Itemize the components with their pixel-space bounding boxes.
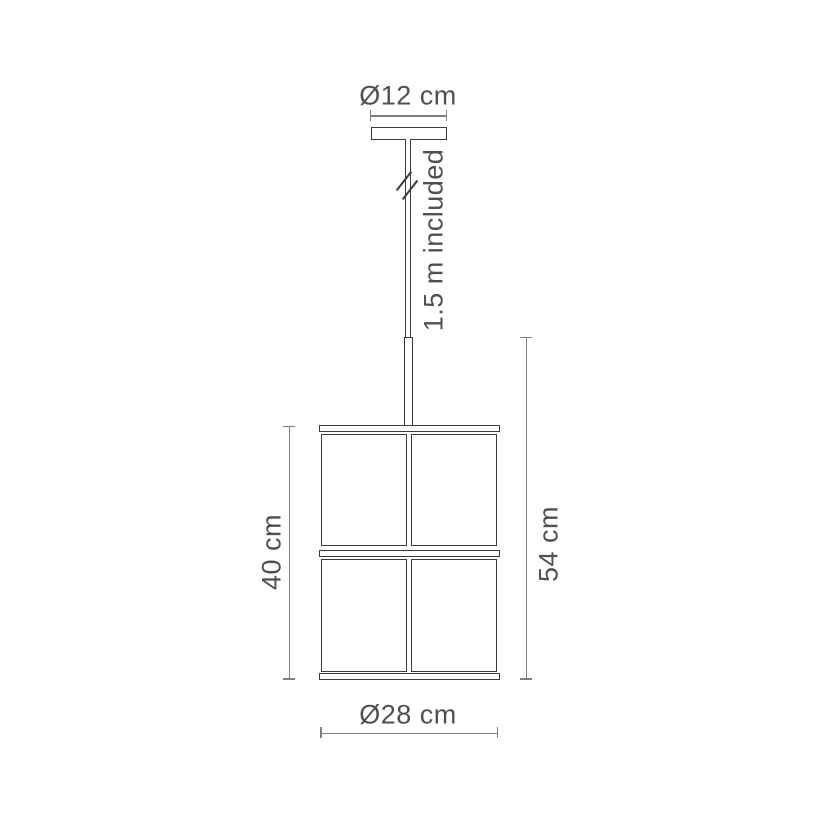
shade-diameter-dimension-line bbox=[320, 733, 498, 735]
shade-panel-bottom-left bbox=[321, 559, 407, 672]
cable-length-label: 1.5 m included bbox=[419, 149, 450, 332]
shade-diameter-label: Ø28 cm bbox=[359, 700, 457, 731]
canopy-dimension-line bbox=[370, 115, 447, 117]
stem bbox=[404, 337, 413, 429]
shade-diameter-dimension-tick-left bbox=[320, 727, 322, 738]
shade-height-dimension-line bbox=[289, 426, 291, 679]
overall-height-dimension-tick-top bbox=[520, 337, 532, 339]
shade-panel-top-left bbox=[321, 434, 407, 546]
canopy-diameter-label: Ø12 cm bbox=[359, 81, 457, 112]
shade-bottom-bar bbox=[319, 673, 500, 680]
pendant-lamp-dimension-diagram: Ø12 cm 1.5 m included 40 cm 54 cm Ø28 cm bbox=[0, 0, 820, 820]
shade-diameter-dimension-tick-right bbox=[497, 727, 499, 738]
shade-height-label: 40 cm bbox=[257, 514, 288, 590]
canopy-dimension-tick-left bbox=[370, 110, 372, 121]
overall-height-dimension-line bbox=[526, 337, 528, 679]
overall-height-dimension-tick-bottom bbox=[520, 678, 532, 680]
suspension-cable bbox=[405, 139, 411, 338]
shade-height-dimension-tick-top bbox=[283, 426, 295, 428]
shade-middle-bar bbox=[319, 550, 500, 557]
canopy-dimension-tick-right bbox=[446, 110, 448, 121]
shade-panel-top-right bbox=[411, 434, 497, 546]
shade-top-bar bbox=[319, 425, 500, 432]
shade-height-dimension-tick-bottom bbox=[283, 678, 295, 680]
overall-height-label: 54 cm bbox=[534, 506, 565, 582]
shade-panel-bottom-right bbox=[411, 559, 497, 672]
